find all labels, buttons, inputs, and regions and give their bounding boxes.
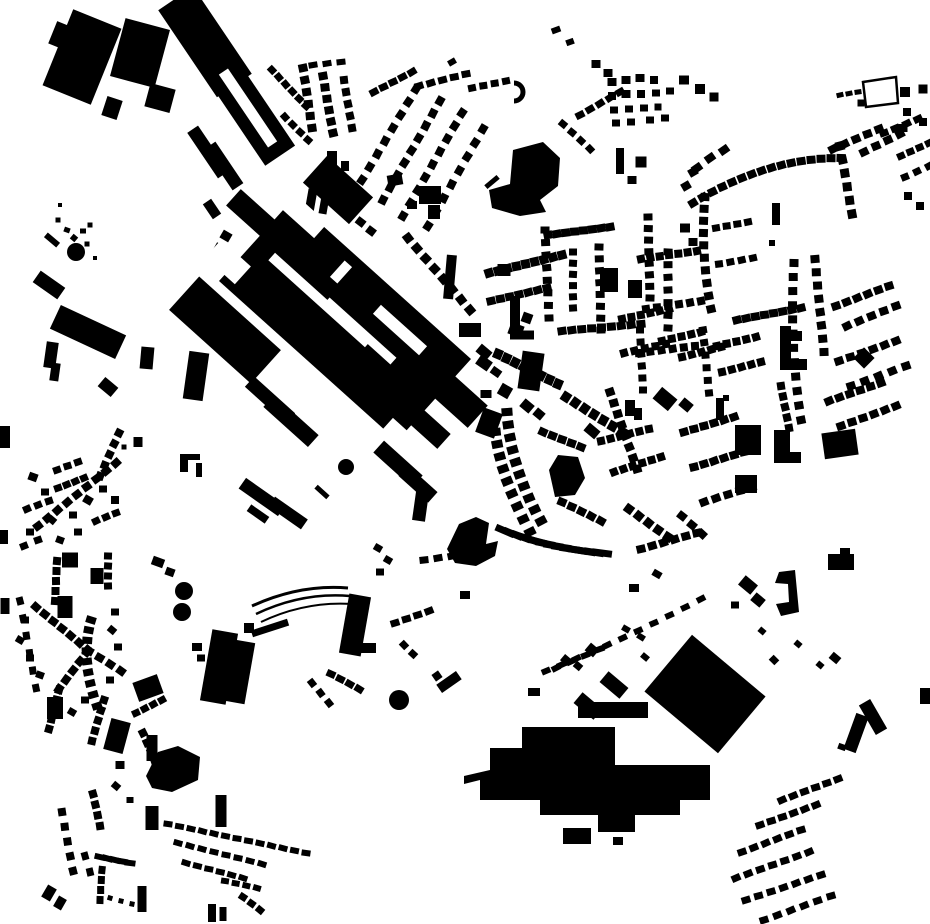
terrace-rows-layer	[16, 59, 930, 924]
map-canvas	[0, 0, 930, 924]
curved-rows-layer	[82, 154, 846, 711]
figure-ground-map	[0, 0, 930, 924]
